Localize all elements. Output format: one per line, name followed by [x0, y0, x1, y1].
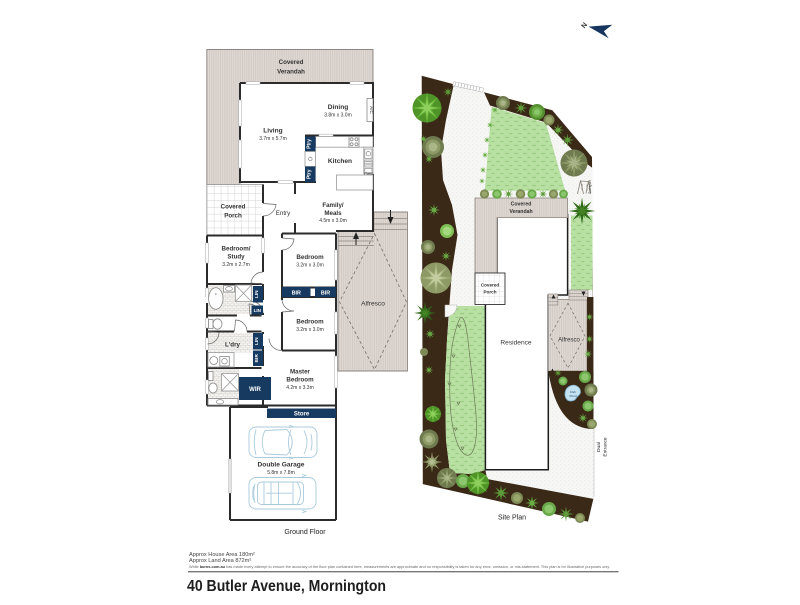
svg-text:Living: Living — [263, 128, 282, 135]
svg-text:Bedroom: Bedroom — [296, 319, 324, 326]
svg-text:LIN: LIN — [254, 337, 260, 345]
svg-text:Porch: Porch — [224, 213, 242, 220]
svg-text:3.8m x 3.0m: 3.8m x 3.0m — [324, 113, 352, 119]
svg-text:WIR: WIR — [249, 387, 261, 393]
svg-text:Study: Study — [227, 254, 245, 261]
svg-text:Meals: Meals — [324, 210, 342, 217]
svg-text:Verandah: Verandah — [509, 209, 532, 215]
svg-text:Covered: Covered — [279, 59, 304, 66]
svg-text:Alfresco: Alfresco — [361, 301, 385, 308]
svg-text:Dining: Dining — [328, 104, 349, 111]
svg-text:While burns.com.au has made ev: While burns.com.au has made every attemp… — [189, 565, 610, 569]
svg-text:Kitchen: Kitchen — [328, 158, 352, 165]
svg-text:Approx Land Area 872m²: Approx Land Area 872m² — [189, 558, 251, 564]
svg-text:BIR: BIR — [292, 291, 301, 297]
svg-text:Porch: Porch — [483, 290, 496, 295]
svg-text:Ptry: Ptry — [306, 139, 312, 149]
svg-text:5.8m x 7.8m: 5.8m x 7.8m — [267, 470, 295, 476]
svg-text:BIR: BIR — [321, 291, 330, 297]
svg-text:Alfresco: Alfresco — [558, 338, 580, 344]
svg-text:Bedroom/: Bedroom/ — [222, 246, 251, 253]
svg-text:Covered: Covered — [221, 204, 246, 211]
svg-text:3.7m x 5.7m: 3.7m x 5.7m — [259, 136, 287, 142]
svg-text:3.2m x 3.0m: 3.2m x 3.0m — [296, 327, 324, 333]
svg-text:4.2m x 3.3m: 4.2m x 3.3m — [286, 385, 314, 391]
svg-text:Verandah: Verandah — [277, 69, 305, 76]
svg-text:Pond: Pond — [569, 394, 576, 398]
svg-text:Covered: Covered — [511, 202, 532, 208]
svg-text:Master: Master — [290, 369, 311, 376]
svg-text:Store: Store — [294, 412, 310, 418]
svg-text:LIN: LIN — [254, 290, 260, 298]
svg-text:40 Butler Avenue, Mornington: 40 Butler Avenue, Mornington — [187, 578, 386, 595]
svg-text:Entry: Entry — [276, 210, 291, 217]
svg-text:L'dry: L'dry — [225, 342, 240, 349]
svg-text:Double Garage: Double Garage — [258, 462, 305, 469]
svg-text:Ptry: Ptry — [306, 169, 312, 179]
svg-text:Residence: Residence — [500, 340, 531, 347]
svg-text:4.5m x 3.0m: 4.5m x 3.0m — [319, 218, 347, 224]
svg-text:3.2m x 3.0m: 3.2m x 3.0m — [296, 263, 324, 269]
svg-text:3.2m x 2.7m: 3.2m x 2.7m — [222, 262, 250, 268]
svg-text:LIN: LIN — [254, 308, 262, 313]
svg-text:Bedroom: Bedroom — [286, 377, 314, 384]
svg-text:Ground Floor: Ground Floor — [284, 529, 326, 536]
svg-text:Covered: Covered — [481, 283, 500, 288]
svg-text:Dual: Dual — [596, 442, 602, 452]
svg-text:Entrance: Entrance — [603, 437, 609, 457]
svg-text:BIR: BIR — [254, 354, 260, 363]
svg-text:Swingset: Swingset — [588, 180, 592, 194]
svg-text:A/C: A/C — [369, 106, 374, 114]
svg-text:Family/: Family/ — [322, 202, 344, 209]
svg-text:Bedroom: Bedroom — [296, 254, 324, 261]
svg-text:Site Plan: Site Plan — [498, 515, 526, 522]
